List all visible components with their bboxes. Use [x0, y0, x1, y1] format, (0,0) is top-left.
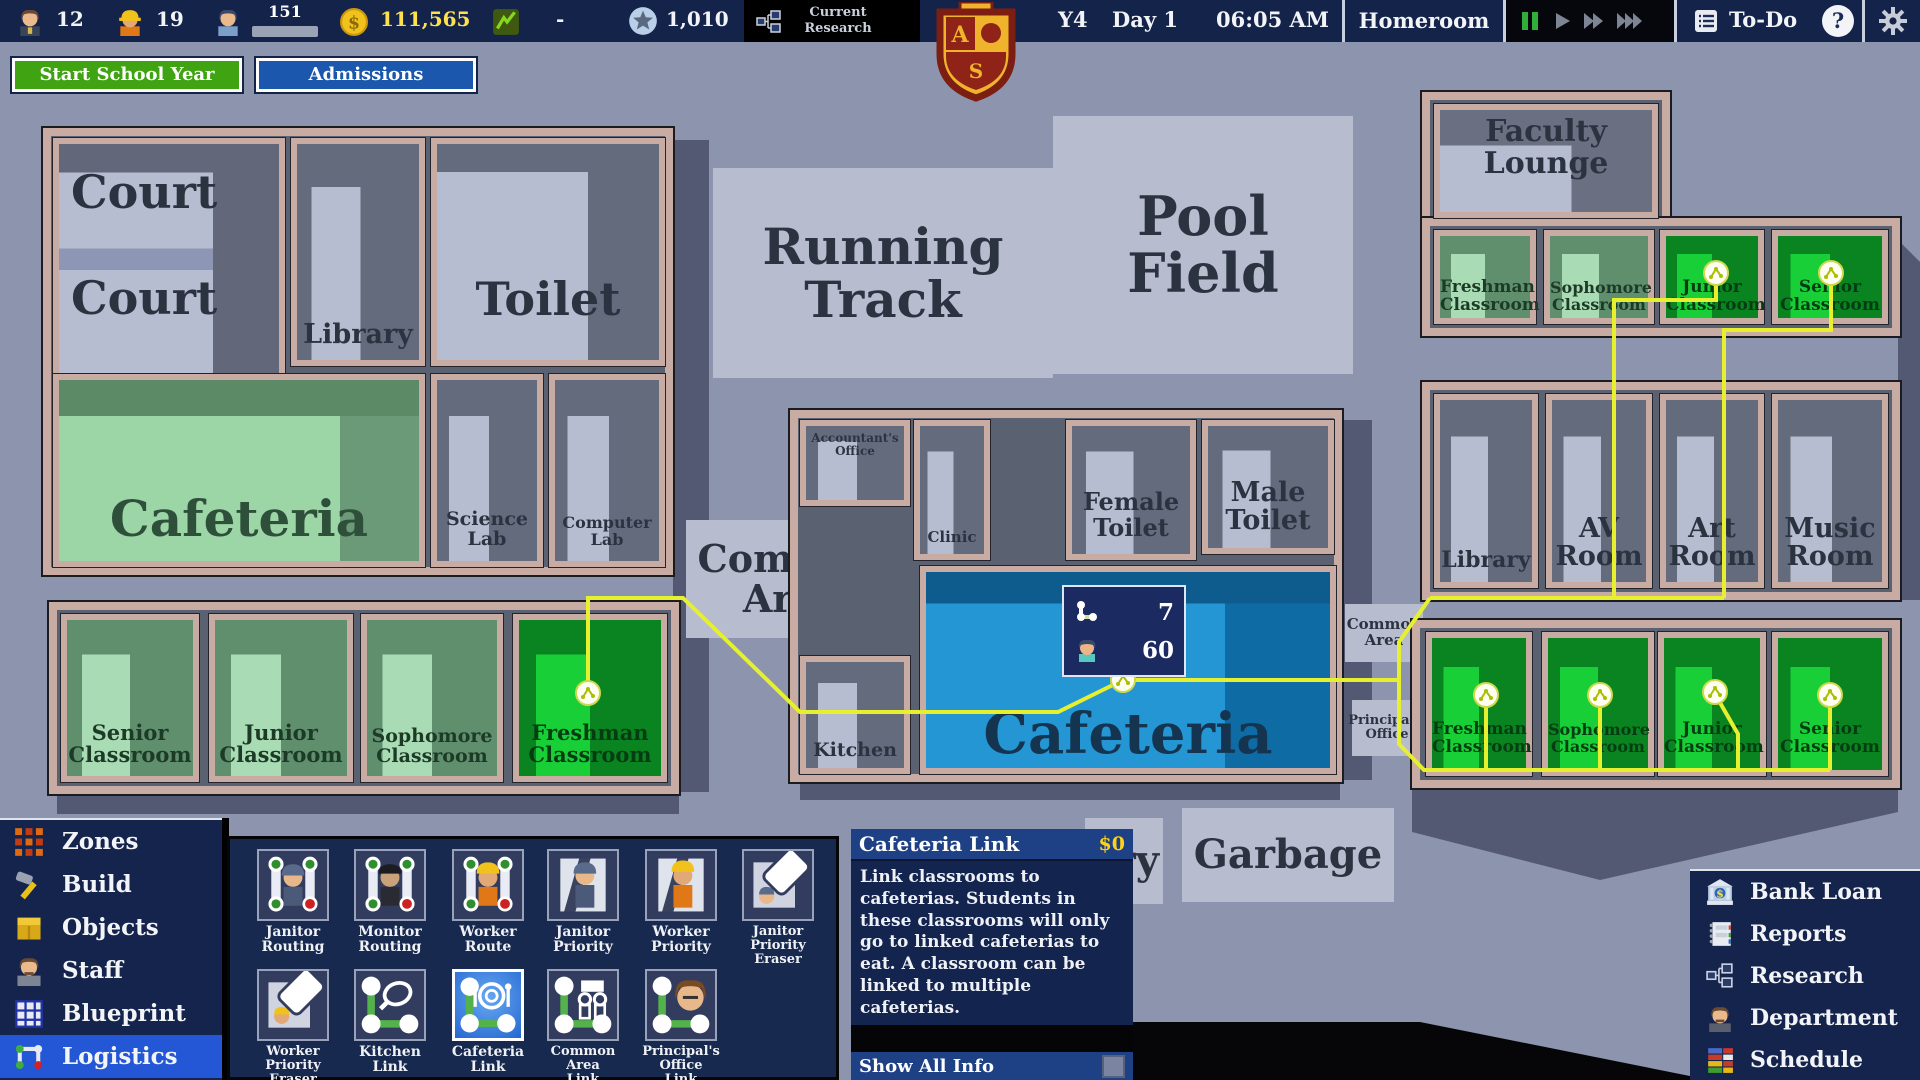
build-menu: Zones Build Objects Staff Blueprint Logi…	[0, 818, 222, 1080]
game-screen: Court Court Library Toilet Cafeteria Sci…	[0, 0, 1920, 1080]
help-button[interactable]: ?	[1822, 5, 1854, 37]
speed-controls	[1506, 0, 1674, 42]
svg-text:A: A	[950, 22, 969, 48]
show-all-info-label: Show All Info	[859, 1056, 1102, 1077]
teacher-icon	[16, 8, 44, 36]
start-school-year-label: Start School Year	[39, 64, 214, 85]
pause-button[interactable]	[1522, 12, 1538, 30]
bank-icon: $	[1706, 878, 1734, 906]
menu-item-label: Department	[1750, 1005, 1898, 1031]
department-icon	[1706, 1004, 1734, 1032]
tool-janitor-priority-eraser[interactable]	[742, 849, 814, 921]
tool-label: Janitor Priority Eraser	[728, 925, 828, 967]
hammer-icon	[14, 870, 44, 900]
student-icon	[214, 8, 242, 36]
todo-list-icon	[1693, 8, 1719, 34]
money-icon: $	[340, 8, 368, 36]
todo-button[interactable]: To-Do	[1674, 0, 1804, 42]
todo-label: To-Do	[1729, 7, 1797, 32]
tool-label: Worker Priority Eraser	[243, 1045, 343, 1080]
staff-icon	[14, 956, 44, 986]
reports-icon	[1706, 920, 1734, 948]
tooltip-title: Cafeteria Link	[859, 832, 1099, 856]
menu-item-bank-loan[interactable]: $ Bank Loan	[1690, 871, 1920, 913]
tooltip-header: Cafeteria Link $0	[851, 829, 1133, 861]
tool-label: Kitchen Link	[340, 1045, 440, 1075]
logistics-toolbar: Janitor Routing Monitor Routing Worker R…	[227, 836, 839, 1080]
tool-worker-priority-eraser[interactable]	[257, 969, 329, 1041]
tool-monitor-routing[interactable]	[354, 849, 426, 921]
tool-label: Janitor Priority	[533, 925, 633, 955]
worker-count: 19	[156, 7, 184, 31]
tool-common-area-link[interactable]	[547, 969, 619, 1041]
tool-label: Principal's Office Link	[631, 1045, 731, 1080]
menu-item-department[interactable]: Department	[1690, 997, 1920, 1039]
tool-label: Monitor Routing	[340, 925, 440, 955]
menu-item-logistics[interactable]: Logistics	[0, 1035, 222, 1078]
svg-text:$: $	[348, 13, 360, 33]
menu-item-build[interactable]: Build	[0, 863, 222, 906]
current-research-label: Current Research	[792, 5, 884, 36]
menu-item-objects[interactable]: Objects	[0, 906, 222, 949]
menu-item-label: Objects	[62, 914, 159, 941]
menu-item-staff[interactable]: Staff	[0, 949, 222, 992]
logistics-icon	[14, 1042, 44, 1072]
menu-item-research[interactable]: Research	[1690, 955, 1920, 997]
menu-item-label: Schedule	[1750, 1047, 1863, 1073]
tool-kitchen-link[interactable]	[354, 969, 426, 1041]
menu-item-label: Logistics	[62, 1043, 178, 1070]
menu-item-label: Blueprint	[62, 1000, 186, 1027]
schedule-icon	[1706, 1046, 1734, 1074]
prestige-icon	[628, 6, 658, 36]
blueprint-icon	[14, 999, 44, 1029]
tooltip-cost: $0	[1099, 833, 1125, 855]
tooltip-body: Link classrooms to cafeterias. Students …	[851, 861, 1133, 1025]
tool-label: Common Area Link	[533, 1045, 633, 1080]
zones-icon	[14, 827, 44, 857]
finance-trend-value: -	[556, 7, 564, 31]
research-icon	[756, 9, 782, 35]
admissions-button[interactable]: Admissions	[256, 58, 476, 92]
menu-item-label: Reports	[1750, 921, 1846, 947]
tool-label: Worker Route	[438, 925, 538, 955]
play-button[interactable]	[1556, 13, 1570, 29]
current-research-button[interactable]: Current Research	[744, 0, 920, 42]
tool-label: Janitor Routing	[243, 925, 343, 955]
period-label: Homeroom	[1359, 8, 1490, 33]
prestige-value: 1,010	[666, 7, 729, 31]
tool-janitor-routing[interactable]	[257, 849, 329, 921]
fast-forward-button[interactable]	[1584, 13, 1603, 29]
menu-item-blueprint[interactable]: Blueprint	[0, 992, 222, 1035]
gear-icon	[1879, 7, 1907, 35]
tool-label: Cafeteria Link	[438, 1045, 538, 1075]
menu-item-label: Build	[62, 871, 132, 898]
day-label: Day 1	[1112, 7, 1178, 32]
admissions-label: Admissions	[309, 64, 424, 85]
tool-janitor-priority[interactable]	[547, 849, 619, 921]
year-label: Y4	[1058, 7, 1088, 32]
show-all-info-checkbox[interactable]	[1102, 1055, 1125, 1078]
menu-item-schedule[interactable]: Schedule	[1690, 1039, 1920, 1080]
management-menu: $ Bank Loan Reports Research Department …	[1690, 869, 1920, 1080]
tool-principals-office-link[interactable]	[645, 969, 717, 1041]
period-indicator: Homeroom	[1342, 0, 1506, 42]
menu-item-label: Staff	[62, 957, 123, 984]
tool-worker-route[interactable]	[452, 849, 524, 921]
objects-icon	[14, 913, 44, 943]
menu-item-reports[interactable]: Reports	[1690, 913, 1920, 955]
tool-cafeteria-link[interactable]	[452, 969, 524, 1041]
svg-text:$: $	[1716, 887, 1723, 900]
svg-text:S: S	[969, 59, 983, 83]
money-value: 111,565	[380, 7, 470, 31]
tool-worker-priority[interactable]	[645, 849, 717, 921]
tooltip-gap	[851, 1025, 1133, 1052]
tool-tooltip: Cafeteria Link $0 Link classrooms to caf…	[851, 829, 1133, 1080]
start-school-year-button[interactable]: Start School Year	[12, 58, 242, 92]
menu-item-label: Zones	[62, 828, 138, 855]
show-all-info-row[interactable]: Show All Info	[851, 1052, 1133, 1080]
tool-label: Worker Priority	[631, 925, 731, 955]
research-icon	[1706, 962, 1734, 990]
time-label: 06:05 AM	[1216, 7, 1329, 32]
school-crest-logo: A S	[926, 2, 1026, 106]
menu-item-zones[interactable]: Zones	[0, 820, 222, 863]
student-capacity-bar	[252, 26, 318, 37]
student-count: 151	[252, 2, 318, 21]
settings-button[interactable]	[1862, 0, 1920, 42]
teacher-count: 12	[56, 7, 84, 31]
worker-icon	[116, 8, 144, 36]
menu-item-label: Research	[1750, 963, 1864, 989]
fastest-forward-button[interactable]	[1617, 13, 1642, 29]
help-label: ?	[1832, 8, 1844, 33]
finance-trend-icon	[492, 8, 520, 36]
menu-item-label: Bank Loan	[1750, 879, 1882, 905]
